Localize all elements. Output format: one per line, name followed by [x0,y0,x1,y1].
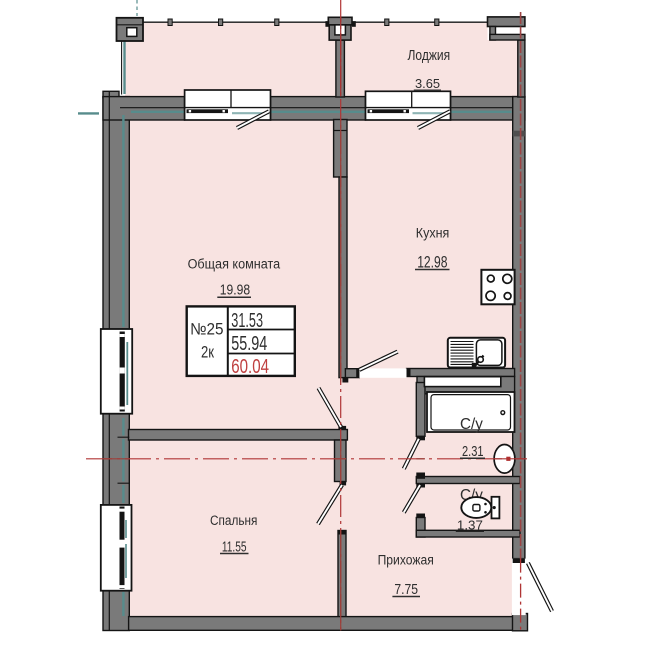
svg-text:3.65: 3.65 [415,76,440,91]
svg-text:60.04: 60.04 [231,356,269,378]
svg-text:12.98: 12.98 [417,253,447,271]
svg-text:Лоджия: Лоджия [408,48,451,64]
svg-text:№25: №25 [190,321,224,339]
svg-text:Кухня: Кухня [416,224,450,240]
svg-text:2к: 2к [201,343,214,362]
svg-text:2.31: 2.31 [462,443,484,460]
svg-text:Спальня: Спальня [210,512,257,528]
svg-text:С/у: С/у [460,416,483,433]
svg-text:Общая комната: Общая комната [188,256,281,272]
svg-text:7.75: 7.75 [394,581,418,598]
svg-text:19.98: 19.98 [220,282,250,299]
svg-text:31.53: 31.53 [231,310,263,332]
svg-text:55.94: 55.94 [231,333,267,355]
svg-text:Прихожая: Прихожая [378,552,434,568]
svg-text:1.37: 1.37 [457,518,483,533]
